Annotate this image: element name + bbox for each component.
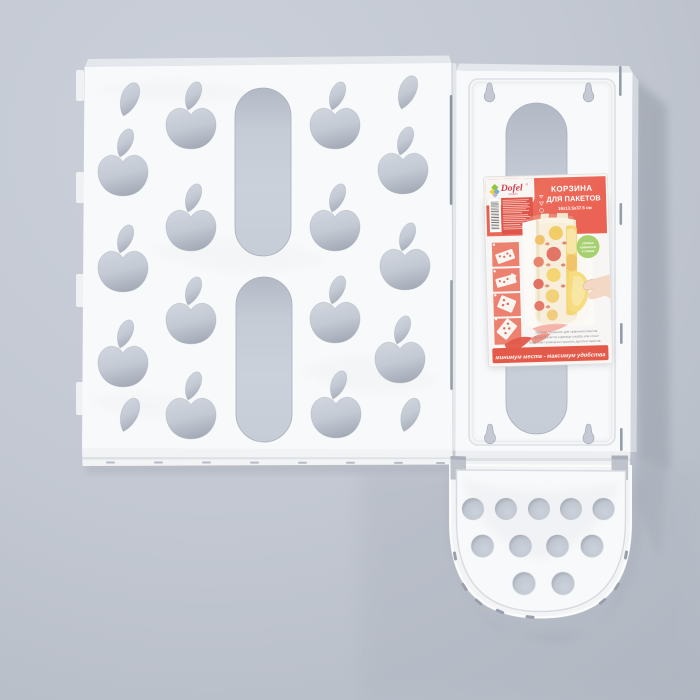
svg-text:продукт: продукт: [508, 193, 518, 196]
svg-text:16х13.5х37.5 см: 16х13.5х37.5 см: [558, 205, 592, 211]
svg-text:к стене: к стене: [582, 249, 595, 253]
svg-text:КОРЗИНА: КОРЗИНА: [551, 184, 593, 194]
svg-text:ДЛЯ ПАКЕТОВ: ДЛЯ ПАКЕТОВ: [546, 193, 601, 204]
